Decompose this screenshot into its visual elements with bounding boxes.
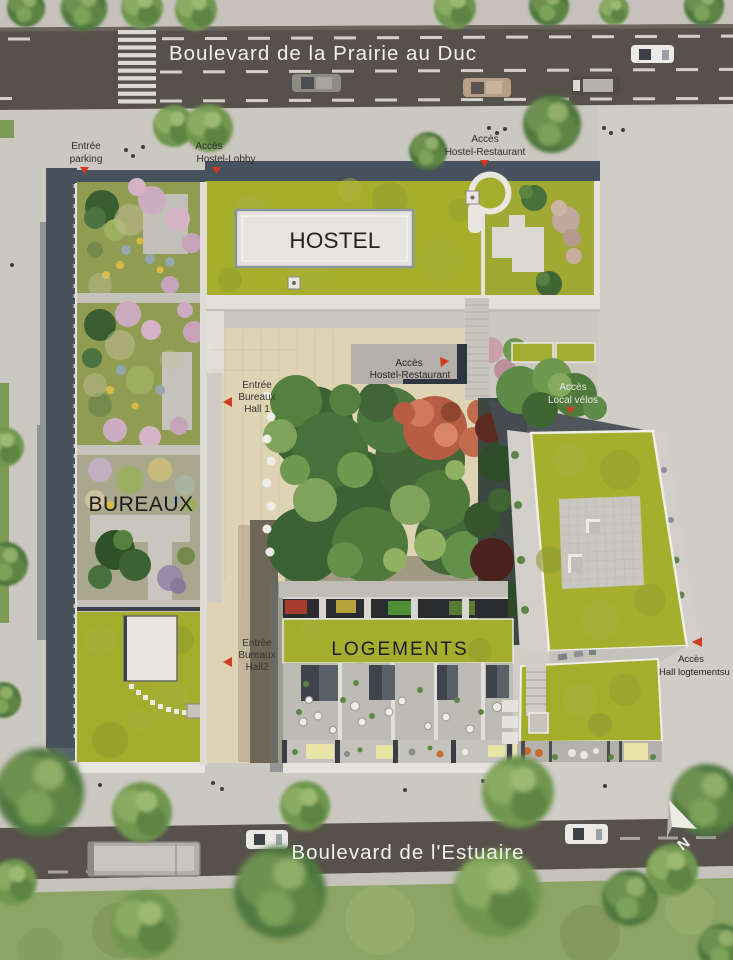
svg-text:Accès: Accès — [559, 382, 586, 393]
svg-text:Local vélos: Local vélos — [548, 395, 598, 406]
svg-text:Hall 1: Hall 1 — [244, 404, 270, 415]
svg-text:Entrée: Entrée — [242, 380, 272, 391]
svg-text:Accès: Accès — [195, 141, 222, 152]
svg-text:HOSTEL: HOSTEL — [289, 228, 380, 253]
svg-text:Accès: Accès — [678, 654, 704, 665]
svg-text:Bureaux: Bureaux — [238, 650, 275, 661]
svg-text:Accès: Accès — [395, 358, 422, 369]
svg-text:Boulevard de la Prairie au Duc: Boulevard de la Prairie au Duc — [169, 42, 477, 65]
svg-text:parking: parking — [70, 154, 103, 165]
svg-text:Bureaux: Bureaux — [238, 392, 275, 403]
svg-text:Boulevard de l'Estuaire: Boulevard de l'Estuaire — [291, 841, 524, 864]
svg-text:Entrée: Entrée — [71, 141, 101, 152]
svg-text:BUREAUX: BUREAUX — [88, 493, 193, 516]
svg-text:Entrée: Entrée — [242, 638, 272, 649]
svg-text:Hall logtementsu: Hall logtementsu — [659, 667, 730, 678]
svg-text:Accès: Accès — [471, 134, 498, 145]
svg-text:Hostel-Restaurant: Hostel-Restaurant — [445, 147, 526, 158]
svg-text:Hostel-Restaurant: Hostel-Restaurant — [370, 370, 451, 381]
svg-text:LOGEMENTS: LOGEMENTS — [331, 639, 468, 660]
svg-text:Hall2: Hall2 — [246, 662, 269, 673]
svg-text:Hostel-Lobby: Hostel-Lobby — [197, 154, 256, 165]
